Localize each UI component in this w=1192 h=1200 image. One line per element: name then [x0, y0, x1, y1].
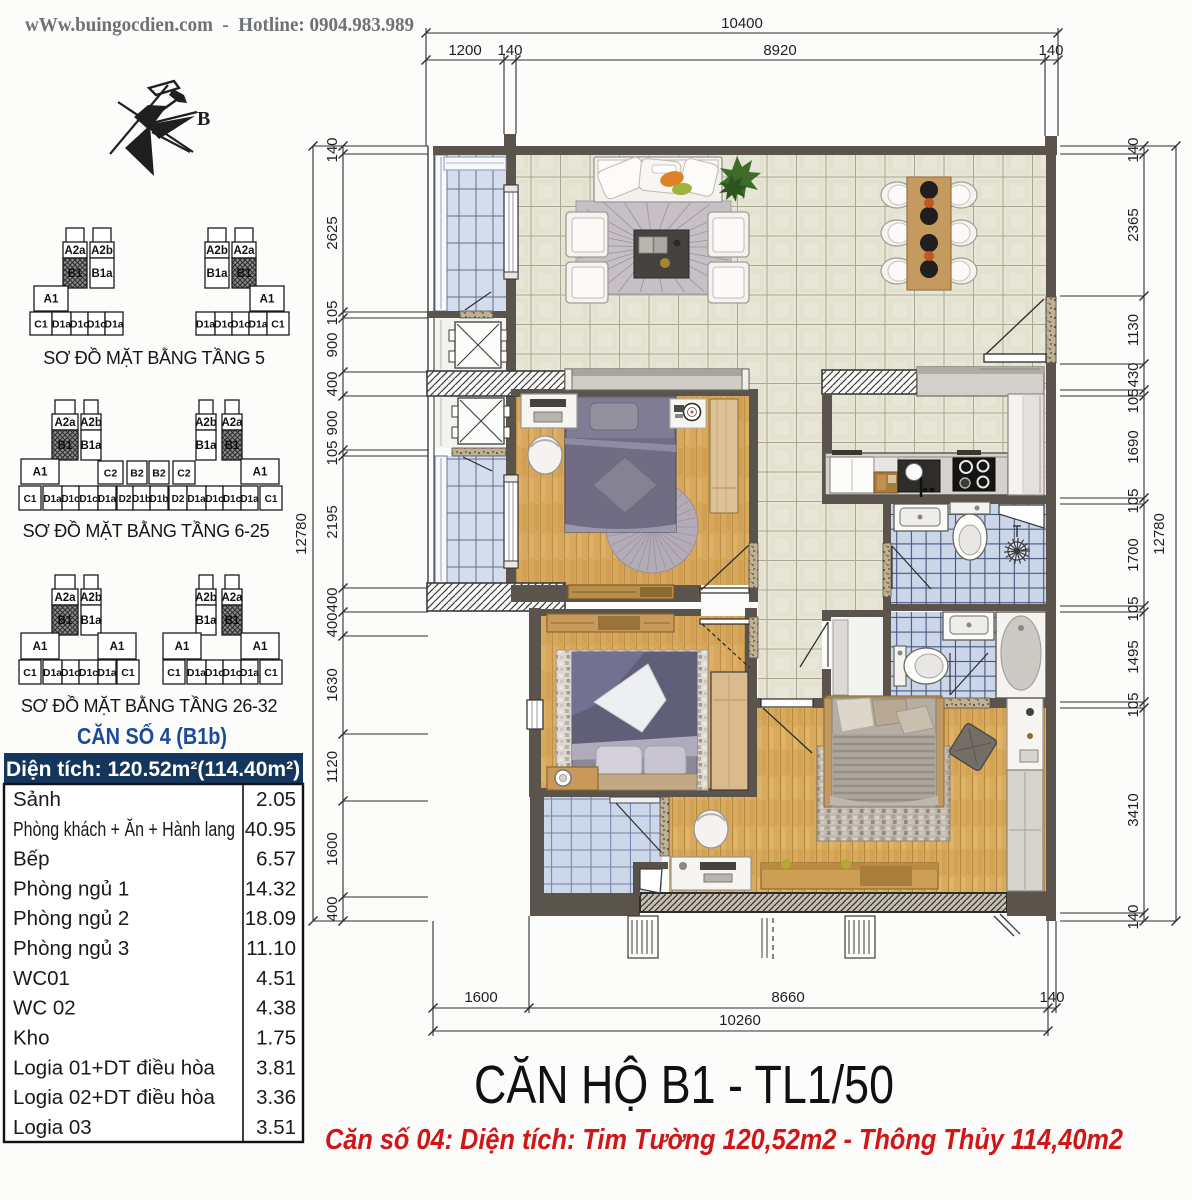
svg-text:400: 400 — [324, 612, 341, 637]
svg-text:Căn số 04: Diện tích: Tim Tườn: Căn số 04: Diện tích: Tim Tường 120,52m2… — [325, 1124, 1123, 1156]
svg-text:105: 105 — [1125, 388, 1142, 413]
svg-text:A1: A1 — [33, 467, 48, 479]
svg-text:D1c: D1c — [79, 667, 98, 679]
svg-text:2365: 2365 — [1125, 208, 1142, 241]
svg-text:C2: C2 — [177, 468, 191, 480]
svg-text:900: 900 — [324, 410, 341, 435]
svg-text:400: 400 — [324, 371, 341, 396]
svg-text:A2a: A2a — [54, 417, 76, 429]
svg-text:D1b: D1b — [132, 494, 151, 505]
svg-text:SƠ ĐỒ MẶT BẰNG TẦNG 26-32: SƠ ĐỒ MẶT BẰNG TẦNG 26-32 — [21, 695, 278, 716]
svg-text:B1: B1 — [237, 268, 252, 280]
svg-text:WC01: WC01 — [13, 967, 70, 990]
svg-text:140: 140 — [1038, 42, 1063, 59]
svg-text:1130: 1130 — [1125, 314, 1142, 346]
svg-text:1.75: 1.75 — [256, 1027, 296, 1050]
svg-text:C2: C2 — [104, 468, 118, 480]
svg-text:8660: 8660 — [771, 989, 804, 1006]
svg-text:4.51: 4.51 — [256, 967, 296, 990]
svg-text:1700: 1700 — [1125, 538, 1142, 571]
svg-text:D2: D2 — [119, 494, 132, 505]
svg-text:D1a: D1a — [98, 494, 117, 505]
svg-text:CĂN SỐ 4 (B1b): CĂN SỐ 4 (B1b) — [77, 722, 227, 749]
svg-text:1200: 1200 — [448, 42, 481, 59]
svg-text:Logia 02+DT điều hòa: Logia 02+DT điều hòa — [13, 1086, 216, 1109]
svg-text:A2a: A2a — [54, 592, 76, 604]
svg-text:8920: 8920 — [763, 42, 796, 59]
svg-text:10400: 10400 — [721, 15, 763, 32]
svg-text:14.32: 14.32 — [245, 877, 296, 900]
svg-text:A2b: A2b — [80, 417, 102, 429]
svg-text:C1: C1 — [265, 494, 278, 505]
svg-text:A2a: A2a — [233, 245, 255, 257]
svg-text:C1: C1 — [24, 494, 37, 505]
svg-text:C1: C1 — [264, 667, 278, 679]
svg-text:B1: B1 — [225, 615, 240, 627]
svg-text:SƠ ĐỒ MẶT BẰNG TẦNG 6-25: SƠ ĐỒ MẶT BẰNG TẦNG 6-25 — [23, 520, 270, 541]
svg-text:11.10: 11.10 — [246, 937, 296, 960]
svg-text:4.38: 4.38 — [256, 997, 296, 1020]
svg-text:B1: B1 — [225, 440, 240, 452]
svg-text:B1: B1 — [58, 440, 73, 452]
svg-text:C1: C1 — [121, 667, 135, 679]
svg-text:D1b: D1b — [150, 494, 169, 505]
svg-text:SƠ ĐỒ MẶT BẰNG TẦNG 5: SƠ ĐỒ MẶT BẰNG TẦNG 5 — [43, 347, 265, 368]
svg-text:105: 105 — [324, 440, 341, 465]
svg-text:400: 400 — [324, 896, 341, 921]
svg-text:Phòng ngủ 3: Phòng ngủ 3 — [13, 937, 129, 960]
svg-text:D1c: D1c — [61, 494, 80, 505]
svg-text:wWw.buingocdien.com - Hotlin: wWw.buingocdien.com - Hotline: 0904.983.… — [25, 14, 414, 36]
svg-text:A1: A1 — [253, 467, 268, 479]
svg-text:A1: A1 — [33, 641, 48, 653]
svg-text:B1a: B1a — [206, 268, 228, 280]
svg-text:2.05: 2.05 — [256, 788, 296, 811]
svg-text:B1a: B1a — [80, 615, 102, 627]
svg-text:D1a: D1a — [248, 319, 267, 331]
svg-text:D1c: D1c — [223, 494, 242, 505]
svg-text:B1: B1 — [68, 268, 83, 280]
svg-text:B: B — [197, 108, 210, 130]
svg-text:105: 105 — [1125, 488, 1142, 513]
svg-text:1600: 1600 — [324, 832, 341, 865]
svg-text:B1a: B1a — [195, 440, 217, 452]
svg-text:1630: 1630 — [324, 668, 341, 701]
svg-text:10260: 10260 — [719, 1012, 761, 1029]
svg-text:105: 105 — [1125, 692, 1142, 717]
svg-text:Phòng khách + Ăn + Hành lang: Phòng khách + Ăn + Hành lang — [13, 818, 235, 841]
svg-text:1495: 1495 — [1125, 640, 1142, 673]
svg-text:A2b: A2b — [206, 245, 228, 257]
svg-text:Logia 03: Logia 03 — [13, 1116, 92, 1139]
svg-text:3.81: 3.81 — [256, 1056, 296, 1079]
svg-text:D1a: D1a — [187, 494, 206, 505]
svg-text:D1a: D1a — [240, 494, 259, 505]
svg-text:B1a: B1a — [91, 268, 113, 280]
svg-text:D1a: D1a — [104, 319, 123, 331]
svg-text:12780: 12780 — [1151, 513, 1168, 555]
svg-text:A2b: A2b — [195, 417, 217, 429]
svg-text:140: 140 — [1125, 904, 1142, 929]
svg-text:D2: D2 — [172, 494, 185, 505]
svg-text:A2a: A2a — [221, 417, 243, 429]
svg-text:140: 140 — [497, 42, 522, 59]
svg-text:A2b: A2b — [91, 245, 113, 257]
svg-text:3410: 3410 — [1125, 793, 1142, 826]
svg-text:C1: C1 — [167, 667, 181, 679]
svg-text:Logia 01+DT điều hòa: Logia 01+DT điều hòa — [13, 1056, 216, 1079]
svg-text:12780: 12780 — [293, 513, 310, 555]
svg-text:6.57: 6.57 — [256, 848, 296, 871]
svg-text:105: 105 — [1125, 596, 1142, 621]
svg-text:D1c: D1c — [61, 667, 80, 679]
svg-text:1690: 1690 — [1125, 430, 1142, 463]
svg-text:C1: C1 — [34, 319, 48, 331]
svg-text:D1a: D1a — [52, 319, 71, 331]
svg-text:CĂN HỘ B1 - TL1/50: CĂN HỘ B1 - TL1/50 — [474, 1055, 894, 1115]
svg-text:B1a: B1a — [80, 440, 102, 452]
svg-text:A1: A1 — [253, 641, 268, 653]
svg-text:D1a: D1a — [187, 667, 206, 679]
svg-text:C1: C1 — [271, 319, 285, 331]
svg-text:B1: B1 — [58, 615, 73, 627]
svg-text:B1a: B1a — [195, 615, 217, 627]
svg-text:D1c: D1c — [79, 494, 98, 505]
svg-text:Diện tích: 120.52m²(114.40m²): Diện tích: 120.52m²(114.40m²) — [6, 758, 300, 781]
svg-text:140: 140 — [1039, 989, 1064, 1006]
svg-text:40.95: 40.95 — [245, 818, 296, 841]
svg-text:A2a: A2a — [64, 245, 86, 257]
svg-text:A2b: A2b — [80, 592, 102, 604]
svg-text:Sảnh: Sảnh — [13, 788, 61, 811]
svg-text:18.09: 18.09 — [245, 907, 296, 930]
svg-text:A1: A1 — [175, 641, 190, 653]
svg-text:1600: 1600 — [464, 989, 497, 1006]
svg-text:A1: A1 — [44, 294, 59, 306]
svg-text:B2: B2 — [152, 468, 166, 480]
svg-text:900: 900 — [324, 332, 341, 357]
svg-text:D1a: D1a — [196, 319, 215, 331]
svg-text:Phòng ngủ 2: Phòng ngủ 2 — [13, 907, 129, 930]
svg-text:1120: 1120 — [324, 751, 341, 783]
svg-text:WC 02: WC 02 — [13, 997, 76, 1020]
svg-text:D1a: D1a — [97, 667, 116, 679]
svg-text:D1a: D1a — [43, 494, 62, 505]
svg-text:140: 140 — [324, 137, 341, 162]
svg-text:2625: 2625 — [324, 216, 341, 249]
svg-text:A2b: A2b — [195, 592, 217, 604]
svg-text:Phòng ngủ 1: Phòng ngủ 1 — [13, 877, 129, 900]
svg-text:D1c: D1c — [205, 494, 224, 505]
svg-text:A1: A1 — [110, 641, 125, 653]
svg-text:Bếp: Bếp — [13, 848, 49, 871]
svg-text:430: 430 — [1125, 362, 1142, 387]
svg-text:140: 140 — [1125, 137, 1142, 162]
svg-text:B2: B2 — [130, 468, 144, 480]
svg-text:Kho: Kho — [13, 1027, 49, 1050]
svg-text:D1a: D1a — [240, 667, 259, 679]
svg-text:A2a: A2a — [221, 592, 243, 604]
svg-text:2195: 2195 — [324, 505, 341, 538]
svg-text:400: 400 — [324, 587, 341, 612]
svg-text:105: 105 — [324, 300, 341, 325]
svg-text:D1a: D1a — [43, 667, 62, 679]
svg-text:3.51: 3.51 — [256, 1116, 296, 1139]
svg-text:C1: C1 — [23, 667, 37, 679]
svg-text:A1: A1 — [260, 294, 275, 306]
svg-text:3.36: 3.36 — [256, 1086, 296, 1109]
